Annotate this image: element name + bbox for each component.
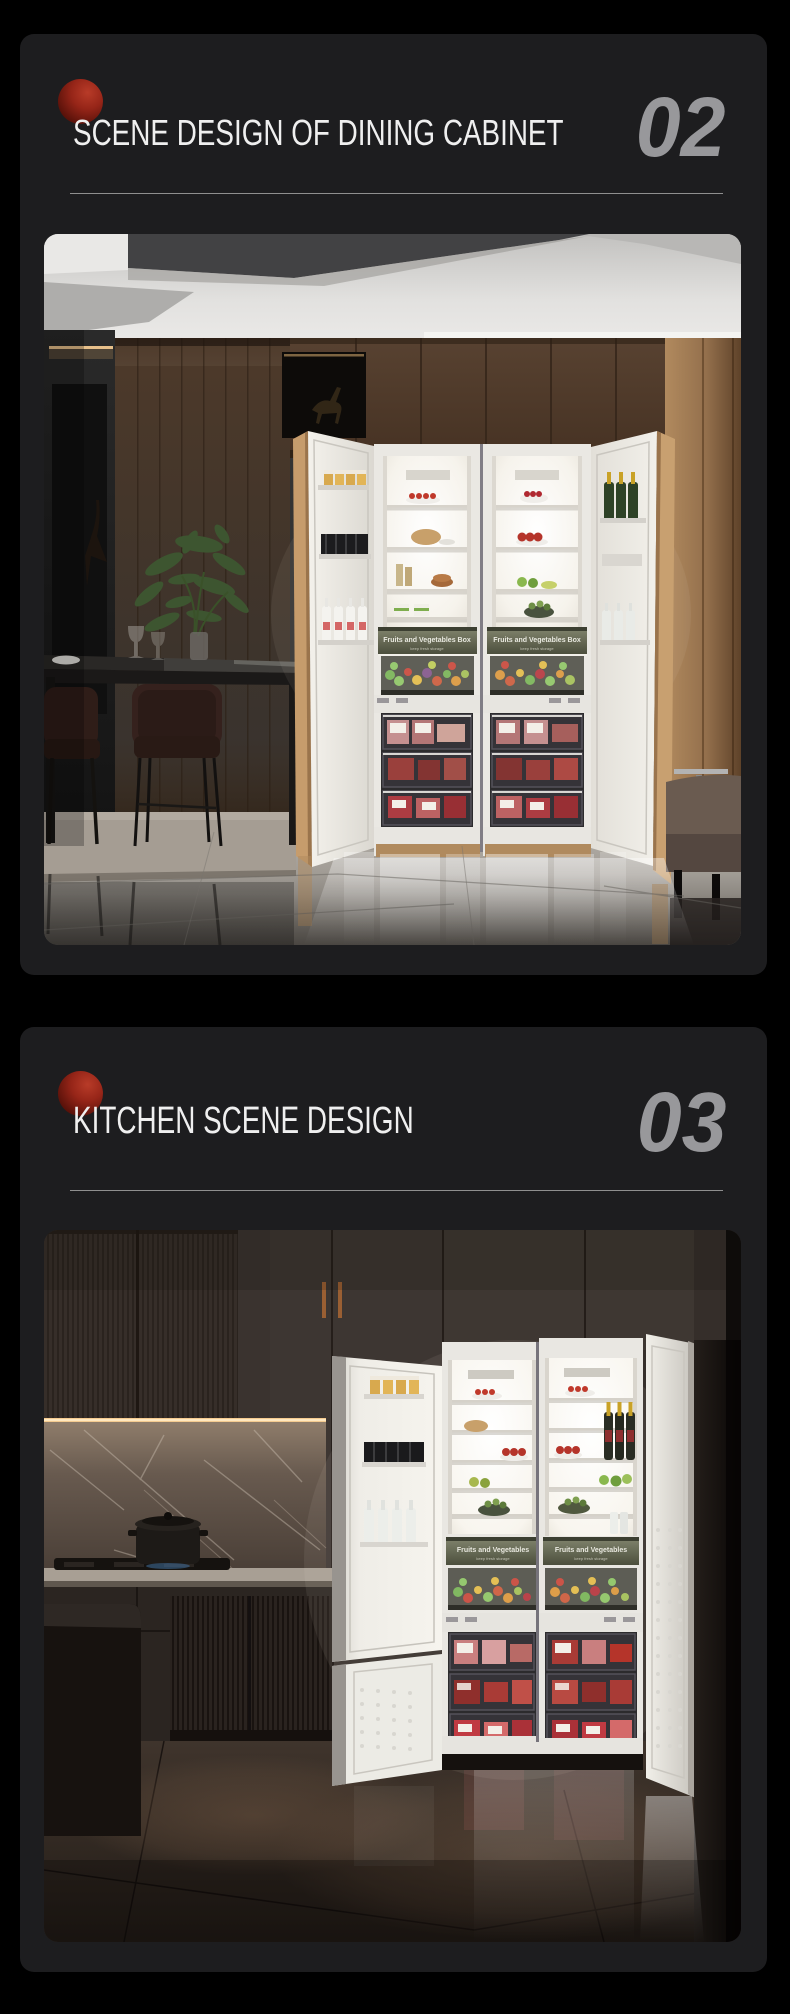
svg-text:keep fresh storage: keep fresh storage: [410, 646, 444, 651]
svg-text:keep fresh storage: keep fresh storage: [520, 646, 554, 651]
svg-text:Fruits and Vegetables Box: Fruits and Vegetables Box: [493, 637, 581, 644]
svg-text:Fruits and Vegetables Box: Fruits and Vegetables Box: [383, 637, 471, 644]
